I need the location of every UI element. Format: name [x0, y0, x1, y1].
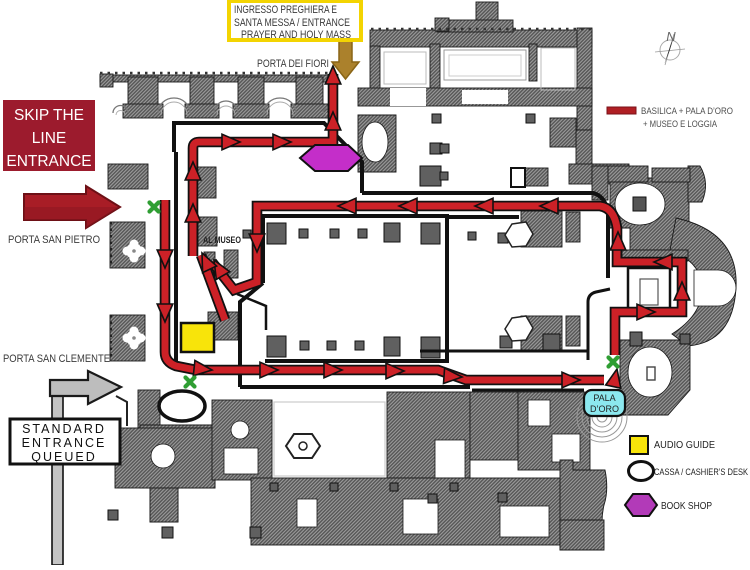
svg-text:AL MUSEO: AL MUSEO [203, 235, 241, 245]
svg-text:BASILICA + PALA D’ORO: BASILICA + PALA D’ORO [641, 106, 733, 117]
svg-text:PORTA SAN CLEMENTE: PORTA SAN CLEMENTE [3, 353, 110, 365]
svg-text:AUDIO GUIDE: AUDIO GUIDE [654, 440, 715, 451]
svg-text:QUEUED: QUEUED [31, 450, 96, 464]
svg-text:STANDARD: STANDARD [22, 422, 106, 436]
svg-text:PRAYER AND HOLY MASS: PRAYER AND HOLY MASS [241, 29, 351, 41]
svg-text:PORTA DEI FIORI: PORTA DEI FIORI [257, 58, 329, 70]
svg-text:D’ORO: D’ORO [590, 404, 619, 414]
svg-text:SANTA MESSA / ENTRANCE: SANTA MESSA / ENTRANCE [234, 17, 350, 29]
svg-text:SKIP THE: SKIP THE [14, 107, 84, 124]
svg-text:+ MUSEO E LOGGIA: + MUSEO E LOGGIA [643, 119, 717, 130]
svg-text:BOOK SHOP: BOOK SHOP [661, 501, 712, 512]
svg-text:ENTRANCE: ENTRANCE [22, 436, 107, 450]
svg-text:PORTA SAN PIETRO: PORTA SAN PIETRO [8, 234, 100, 246]
svg-text:INGRESSO PREGHIERA E: INGRESSO PREGHIERA E [234, 4, 337, 16]
svg-text:PALA: PALA [593, 393, 615, 403]
svg-text:ENTRANCE: ENTRANCE [6, 153, 91, 170]
svg-text:CASSA / CASHIER’S DESK: CASSA / CASHIER’S DESK [654, 467, 749, 477]
svg-text:LINE: LINE [32, 130, 66, 147]
svg-text:N: N [666, 29, 676, 44]
